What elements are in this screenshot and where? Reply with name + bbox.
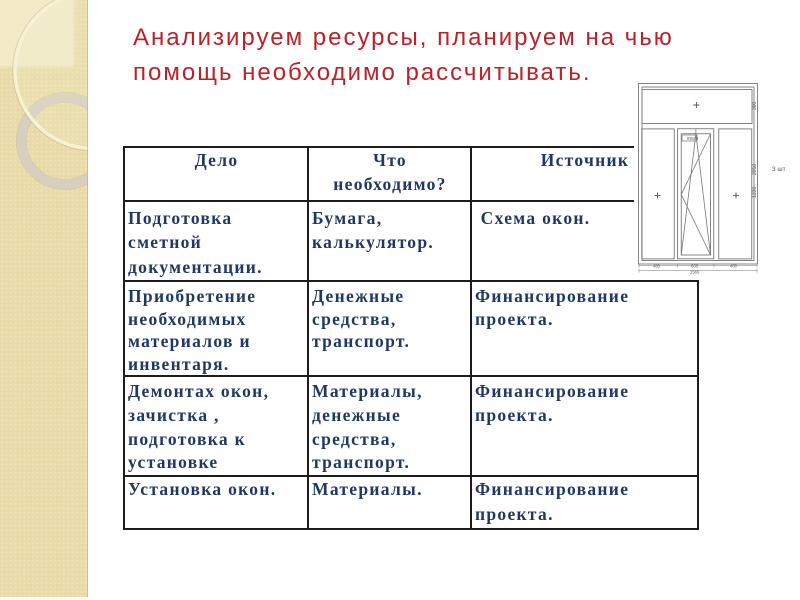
svg-text:Ю842: Ю842 xyxy=(687,136,699,141)
svg-text:608: 608 xyxy=(691,263,699,268)
svg-text:480: 480 xyxy=(653,263,661,268)
svg-text:1330: 1330 xyxy=(752,187,758,198)
svg-text:300: 300 xyxy=(752,101,758,110)
svg-text:2050: 2050 xyxy=(752,164,758,175)
svg-text:3 шт: 3 шт xyxy=(772,166,786,173)
svg-text:480: 480 xyxy=(730,263,738,268)
svg-text:1565: 1565 xyxy=(690,269,700,274)
